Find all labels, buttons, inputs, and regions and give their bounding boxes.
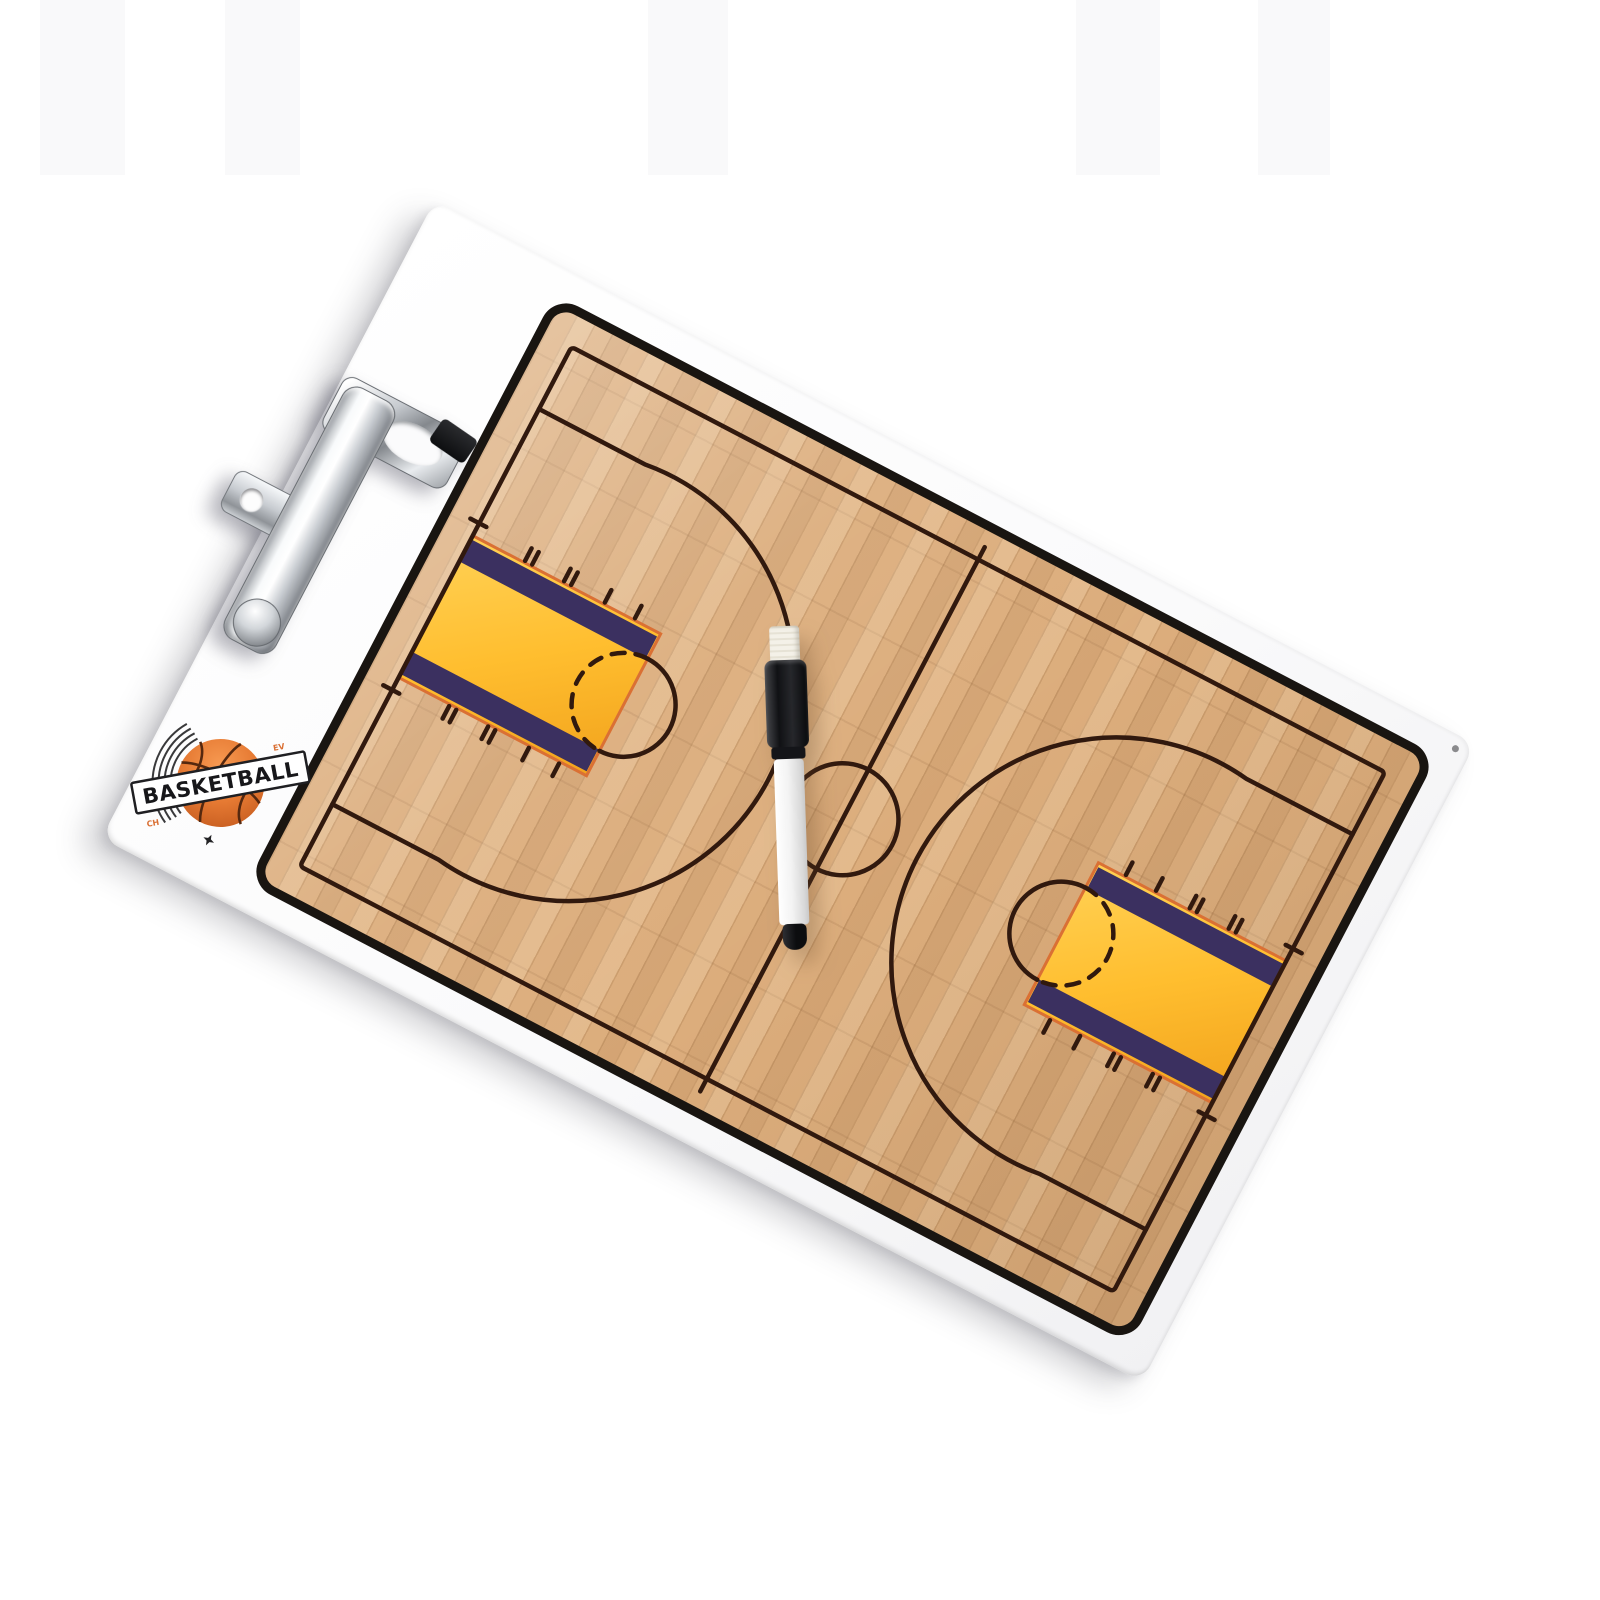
left-key	[399, 536, 661, 776]
background-band	[40, 0, 125, 175]
background-band	[1076, 0, 1160, 175]
marker-tail-plug	[782, 923, 807, 950]
marker-eraser-tip	[769, 625, 800, 662]
background-band	[1258, 0, 1330, 175]
marker-cap-lip	[771, 746, 805, 759]
marker-cap	[764, 659, 809, 748]
marker-barrel	[774, 758, 810, 925]
background-band	[648, 0, 728, 175]
background-band	[225, 0, 300, 175]
hanging-hole	[1451, 744, 1460, 753]
clip-tab-hole	[236, 484, 267, 515]
product-photo-stage: BASKETBALL CH EV	[0, 0, 1600, 1600]
half-court-line	[707, 560, 978, 1079]
right-key	[1024, 863, 1286, 1103]
logo-micro-text-top: EV	[272, 742, 286, 753]
logo-micro-text-bottom: CH	[146, 818, 160, 829]
